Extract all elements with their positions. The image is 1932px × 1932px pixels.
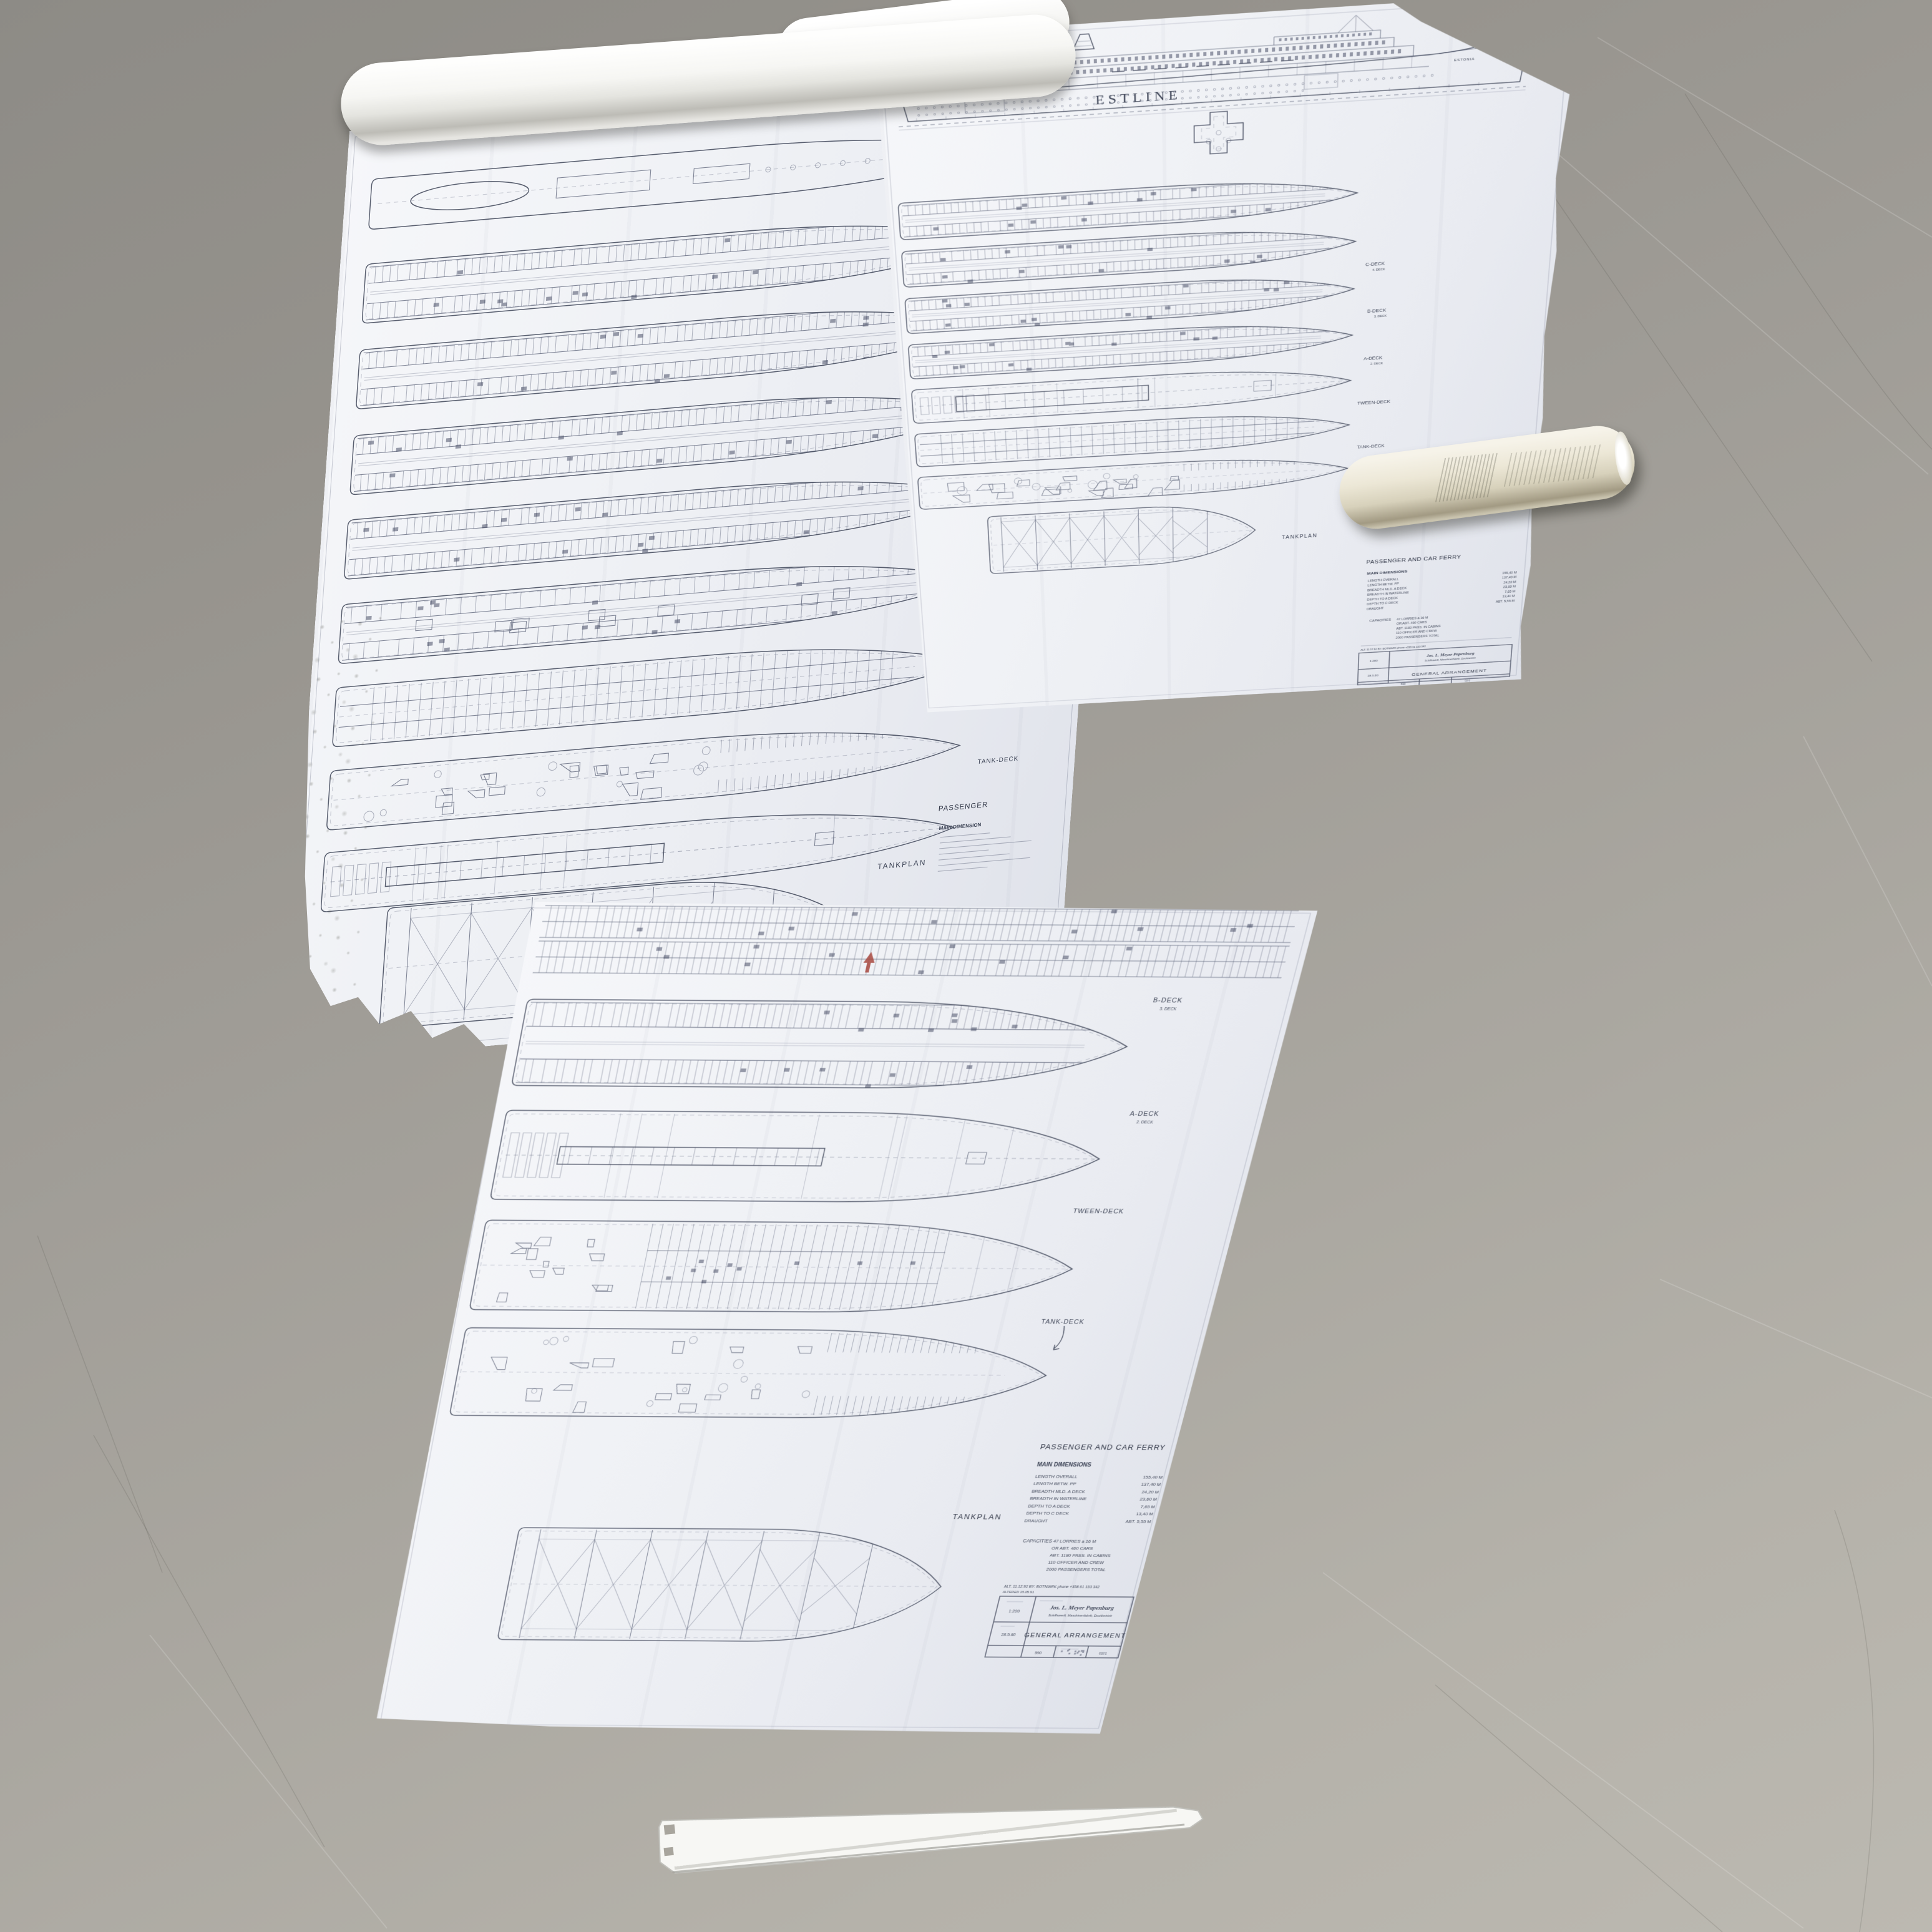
deck-plan-content [475,1222,1078,1311]
deck-plan-content [912,321,1330,378]
deck-plan-content [354,386,954,491]
right-dim-title: MAIN DIMENSIONS [1367,569,1407,575]
dim-value: 155,40 M [1143,1475,1164,1480]
title-block-scale: 1:200 [1008,1609,1020,1614]
main-dimensions-title: MAIN DIMENSIONS [1037,1462,1092,1468]
deck-plan-content [332,723,917,826]
plan-line [1254,380,1271,391]
right-dim-value: 7,65 M [1505,590,1515,593]
deck-plan-content [366,215,965,322]
right-dim-value: 24,20 M [1503,580,1516,584]
photo-of-blueprints: TANK-DECK PASSENGER MAIN DIMENSION TANKP… [0,0,1932,1932]
dim-value: 137,40 M [1141,1482,1162,1487]
plan-line [911,228,1329,285]
plan-line [346,582,927,635]
plan-line [497,1528,955,1642]
deck-plan-content [498,1113,1105,1201]
right-company-sub: Schiffswerft, Maschinenfabrik, Dockbetri… [1425,657,1476,663]
roll-text-scribble [1504,444,1603,487]
deck-plan-content [338,640,917,744]
tankplan-label: TANKPLAN [952,1513,1003,1521]
plan-line [497,1237,623,1302]
plan-line [360,301,960,406]
right-heading: PASSENGER AND CAR FERRY [1366,554,1461,565]
plan-line [1201,115,1236,150]
plan-line [338,549,973,663]
plan-line [469,1220,1083,1314]
right-dim-label: LENGTH OVERALL [1368,578,1400,583]
plan-line [993,530,1251,545]
deck-plan-content [905,227,1334,287]
dim-label: DEPTH TO A DECK [1027,1504,1071,1509]
plan-line [940,837,1011,843]
right-sheet-labels: ESTLINE ESTONIA C-DECK 4. DECK B-DECK 3.… [1095,52,1558,703]
plan-line [920,395,975,415]
right-c-deck-label: C-DECK [1365,261,1385,267]
altered-note-line: ALTERED 15.05.91 [1002,1590,1035,1594]
plan-line [908,179,1328,237]
dim-value: 7,65 M [1140,1505,1156,1510]
right-dim-label: BREADTH IN WATERLINE [1367,592,1409,597]
plan-line [956,385,1149,411]
right-c-deck-sub: 4. DECK [1372,268,1385,271]
capacity-line: 47 LORRIES a 16 M [1053,1539,1097,1544]
dim-label: DRAUGHT [1024,1518,1048,1523]
alt-note-line: ALT. 11.12.92 BY: BOTNIARK phone +358 61… [1003,1585,1100,1589]
deck-plan-content [328,801,950,909]
plan-line [1060,1649,1085,1656]
roll-text-scribble [1435,453,1499,502]
plan-line [912,290,1322,317]
right-cap-line: OR ABT. 460 CARS [1397,621,1427,626]
dim-value: 24,20 M [1141,1490,1160,1495]
plan-line [568,1147,819,1166]
plan-line [519,1529,876,1641]
b-deck-label: B-DECK [1152,997,1183,1005]
dim-value: ABT. 5,55 M [1125,1519,1152,1524]
title-block-drawing-title: GENERAL ARRANGEMENT [1023,1632,1126,1639]
plan-line [1361,638,1512,646]
plan-line [525,1042,1085,1048]
plan-line [344,465,979,579]
left-passenger-label: PASSENGER [938,801,988,813]
plan-line [1338,14,1373,32]
deck-plan-content [902,178,1335,237]
plan-line [330,828,949,882]
right-alt-line: ALT. 11.12.92 BY: BOTNIARK phone +358 61… [1360,645,1426,651]
right-dim-label: DRAUGHT [1367,607,1384,611]
bracket-slot [664,1824,675,1835]
title-block-company-sub: Schiffswerft, Maschinenfabrik, Dockbetri… [1048,1614,1113,1618]
left-main-dimension-label: MAIN DIMENSION [939,822,982,831]
plan-line [737,1010,1021,1089]
right-cap-line: 2000 PASSENGERS TOTAL [1396,634,1440,640]
plan-line [1073,34,1095,51]
plan-line [348,557,924,660]
a-deck-label: A-DECK [1129,1110,1159,1118]
b-deck-sub: 3. DECK [1159,1007,1177,1012]
plan-line [917,322,1325,376]
plan-line [339,666,915,717]
right-dim-value: 155,40 M [1502,571,1517,575]
plan-line [915,336,1321,363]
right-cap-line: 47 LORRIES a 16 M [1397,617,1428,622]
plan-line [939,850,989,854]
plan-line [462,1372,1005,1375]
plan-line [665,1259,916,1285]
right-deck-plans [881,0,1571,712]
a-deck-sub: 2. DECK [1136,1121,1154,1125]
plan-line [901,178,1354,237]
dim-value: 13,40 M [1136,1511,1154,1516]
plan-line [389,753,669,821]
plan-line [449,1328,1056,1419]
left-tank-deck-label: TANK-DECK [977,755,1018,766]
deck-plan-content [342,555,942,661]
left-tankplan-label: TANKPLAN [877,858,927,871]
capacities-label: CAPACITIES [1022,1538,1053,1544]
dim-label: DEPTH TO C DECK [1026,1511,1070,1516]
dim-label: LENGTH BETW. PP [1033,1481,1076,1486]
deck-plan-content [359,301,959,409]
right-rev-no: 02/1 [1465,680,1471,683]
tank-deck-label: TANK-DECK [1040,1319,1085,1325]
right-dim-label: DEPTH TO A DECK [1367,597,1398,602]
right-sheet-drawing: ESTLINE ESTONIA C-DECK 4. DECK B-DECK 3.… [874,0,1578,713]
plan-line [348,471,948,576]
blueprint-sheet-right: ESTLINE ESTONIA C-DECK 4. DECK B-DECK 3.… [874,0,1578,713]
plan-line [415,583,851,643]
plan-line [358,412,939,466]
plan-line [396,844,651,885]
capacity-line: 110 OFFICER AND CREW [1048,1560,1105,1565]
plan-line [482,1265,1067,1269]
deck-plan-content [922,456,1318,512]
plan-line [957,471,1138,499]
dim-label: BREADTH IN WATERLINE [1029,1496,1087,1501]
plan-line [881,0,1571,708]
title-block-date: 28.5.80 [1000,1632,1016,1637]
deck-plan-content [992,503,1251,572]
deck-plan-content [909,275,1332,334]
right-dim-label: DEPTH TO C DECK [1367,602,1398,607]
plan-line [529,1335,822,1408]
right-tank-deck-label: TANK-DECK [1357,444,1385,450]
plan-line [359,299,987,405]
right-company: Jos. L. Meyer Papenburg [1426,651,1475,658]
right-b-deck-label: B-DECK [1367,308,1387,314]
capacity-line: OR ABT. 460 CARS [1051,1546,1093,1551]
title-block-company: Jos. L. Meyer Papenburg [1049,1605,1115,1611]
title-block-rev-no: 02/1 [1098,1652,1107,1656]
plan-line [372,216,955,320]
plan-line [939,854,1010,860]
right-tween-deck-label: TWEEN-DECK [1357,399,1390,406]
right-scale: 1:200 [1370,660,1378,663]
tween-deck-label: TWEEN-DECK [1072,1208,1125,1216]
right-b-deck-sub: 3. DECK [1374,315,1387,318]
plan-line [920,421,1314,456]
plan-line [641,1251,945,1284]
plan-line [364,327,945,380]
capacity-line: ABT. 1180 PASS. IN CABINS [1049,1553,1111,1558]
plan-line [940,833,990,837]
plan-line [363,746,710,822]
plan-line [905,194,1325,223]
right-dim-value: 23,60 M [1503,585,1515,589]
plan-line [919,381,1346,406]
plan-line [1075,41,1091,46]
dim-label: LENGTH OVERALL [1035,1474,1078,1479]
plan-line [354,386,954,491]
title-block-sheet-no: 590 [1034,1652,1042,1656]
plan-line [604,1113,1017,1200]
plan-line [938,867,988,871]
deck-plan-content [502,1529,949,1641]
plan-line [533,941,1290,978]
right-sheet-no: 590 [1400,683,1405,686]
right-dim-label: LENGTH BETW. PP [1367,582,1399,587]
right-cap-label: CAPACITIES [1369,618,1392,623]
right-dim-value: ABT. 5,55 M [1496,600,1515,604]
dim-label: BREADTH MLD. A DECK [1031,1489,1086,1494]
bracket-slot [663,1847,673,1856]
right-a-deck-sub: 2. DECK [1370,362,1383,366]
right-tankplan-label: TANKPLAN [1282,533,1317,540]
right-dim-value: 13,40 M [1502,595,1515,598]
plan-line [1054,1326,1065,1349]
plan-line [432,222,910,316]
right-date: 28.5.80 [1367,675,1378,678]
hull-ship-name: ESTONIA [1454,57,1475,62]
plan-line [1274,30,1380,45]
plan-line [636,1224,951,1310]
plan-line [339,656,916,728]
dim-value: 23,60 M [1139,1497,1158,1502]
deck-plan-content [919,366,1347,421]
capacity-line: 2000 PASSENGERS TOTAL [1046,1567,1107,1572]
right-a-deck-label: A-DECK [1364,356,1383,361]
plan-line [505,1155,1094,1159]
right-dim-value: 137,40 M [1502,576,1517,580]
deck-plan-content [455,1330,1015,1416]
plan-line [352,497,933,550]
heading-passenger-car-ferry: PASSENGER AND CAR FERRY [1040,1443,1167,1452]
plan-line [914,275,1325,330]
deck-plan-content [919,412,1315,465]
